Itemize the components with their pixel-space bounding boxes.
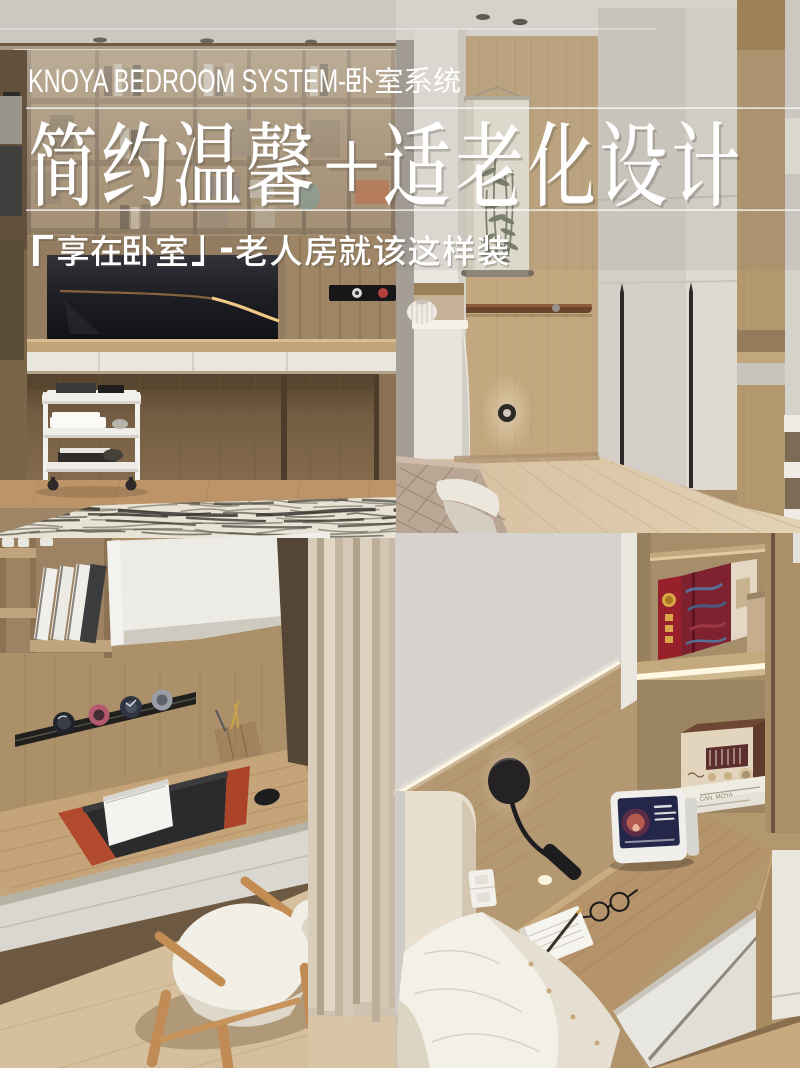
svg-text:KNOYA BEDROOM SYSTEM-: KNOYA BEDROOM SYSTEM- <box>28 63 346 99</box>
